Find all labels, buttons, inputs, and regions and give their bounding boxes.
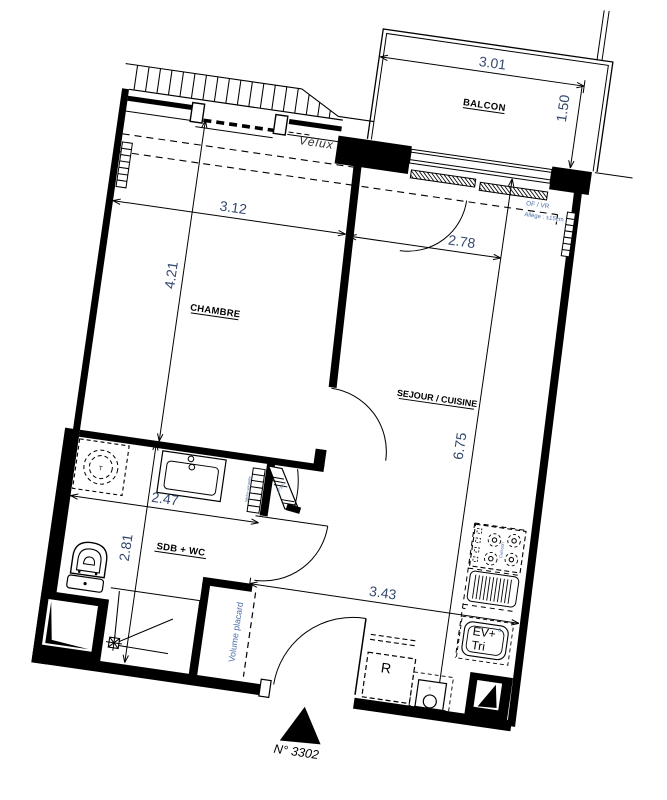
svg-text:Volume placard: Volume placard: [226, 601, 245, 663]
svg-text:4.21: 4.21: [161, 260, 181, 289]
svg-text:3.12: 3.12: [219, 198, 248, 218]
svg-text:Tri: Tri: [471, 638, 486, 654]
svg-text:Allège : ±15cm: Allège : ±15cm: [524, 212, 564, 224]
svg-text:SDB + WC: SDB + WC: [156, 541, 206, 559]
svg-text:Vélux: Vélux: [298, 133, 335, 152]
svg-text:2.47: 2.47: [150, 489, 179, 509]
svg-text:c: c: [498, 628, 502, 634]
svg-text:Cuisson: Cuisson: [498, 541, 505, 558]
svg-text:CHAMBRE: CHAMBRE: [189, 302, 241, 320]
svg-text:SEJOUR / CUISINE: SEJOUR / CUISINE: [396, 388, 478, 409]
svg-text:6.75: 6.75: [450, 431, 470, 460]
svg-text:3.43: 3.43: [368, 583, 397, 603]
svg-text:1.50: 1.50: [553, 94, 573, 123]
svg-text:R: R: [380, 659, 392, 676]
svg-text:BALCON: BALCON: [462, 97, 506, 114]
svg-text:2.78: 2.78: [447, 231, 476, 251]
svg-text:2.81: 2.81: [116, 533, 136, 562]
svg-text:3.01: 3.01: [478, 53, 507, 73]
svg-text:N° 3302: N° 3302: [273, 742, 320, 762]
svg-text:OF / VR: OF / VR: [526, 200, 551, 210]
svg-text:T: T: [98, 466, 103, 473]
